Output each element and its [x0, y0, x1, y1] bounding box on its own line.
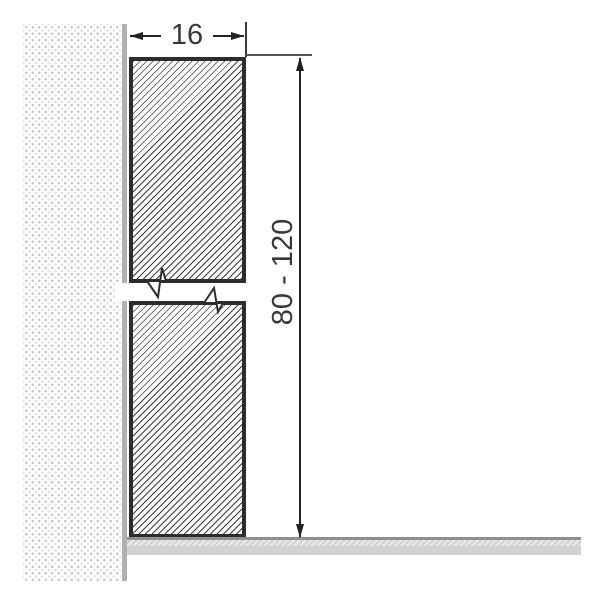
floor-section	[127, 537, 581, 583]
height-extension-line	[246, 54, 312, 56]
arrow-down-icon	[296, 524, 304, 538]
height-dimension-label: 80 - 120	[268, 207, 298, 337]
arrow-up-icon	[296, 57, 304, 71]
floor-bottom-edge	[127, 537, 581, 540]
section-break	[100, 258, 270, 322]
width-extension-line	[245, 22, 247, 57]
profile-upper-segment	[129, 57, 246, 283]
arrow-left-icon	[130, 32, 143, 40]
profile-lower-segment	[129, 301, 246, 538]
technical-drawing-canvas: 16 80 - 120	[0, 0, 604, 604]
break-gap	[115, 283, 252, 301]
height-dimension-line	[299, 58, 301, 537]
width-dimension-label: 16	[161, 21, 213, 50]
arrow-right-icon	[231, 32, 244, 40]
